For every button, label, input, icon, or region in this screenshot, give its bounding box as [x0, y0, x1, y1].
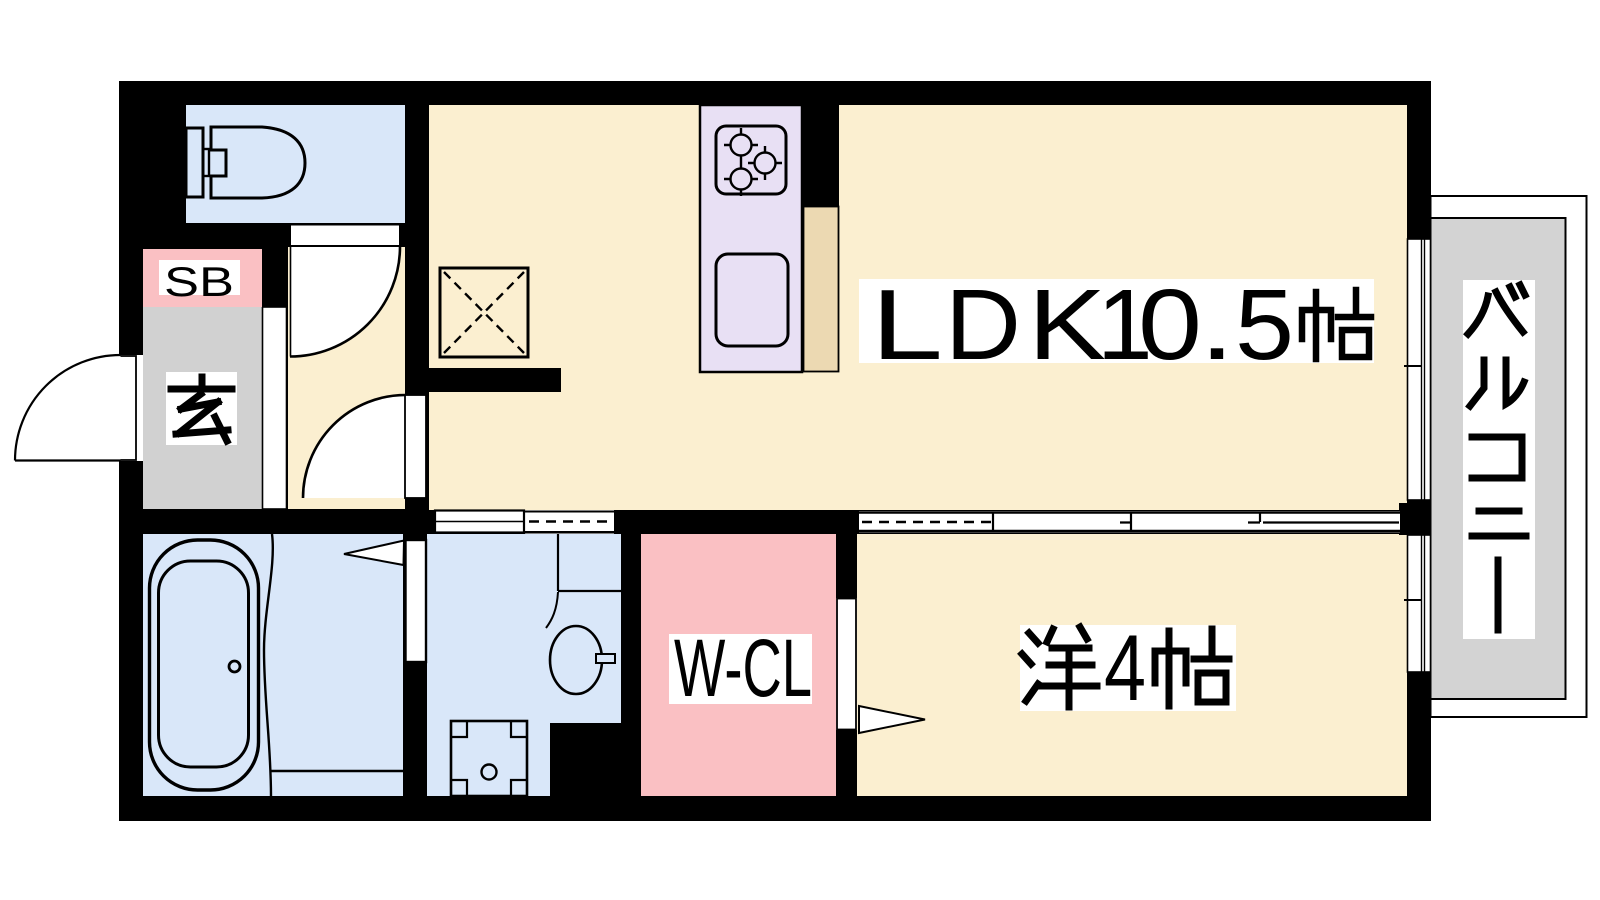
- svg-text:4: 4: [1104, 615, 1146, 720]
- svg-text:K: K: [1028, 269, 1106, 381]
- svg-text:SB: SB: [164, 258, 234, 305]
- svg-text:.: .: [1199, 269, 1235, 381]
- svg-text:W-CL: W-CL: [674, 623, 812, 714]
- svg-text:0: 0: [1138, 269, 1202, 381]
- svg-text:5: 5: [1235, 269, 1294, 381]
- svg-text:D: D: [945, 269, 1021, 381]
- svg-text:L: L: [871, 269, 943, 381]
